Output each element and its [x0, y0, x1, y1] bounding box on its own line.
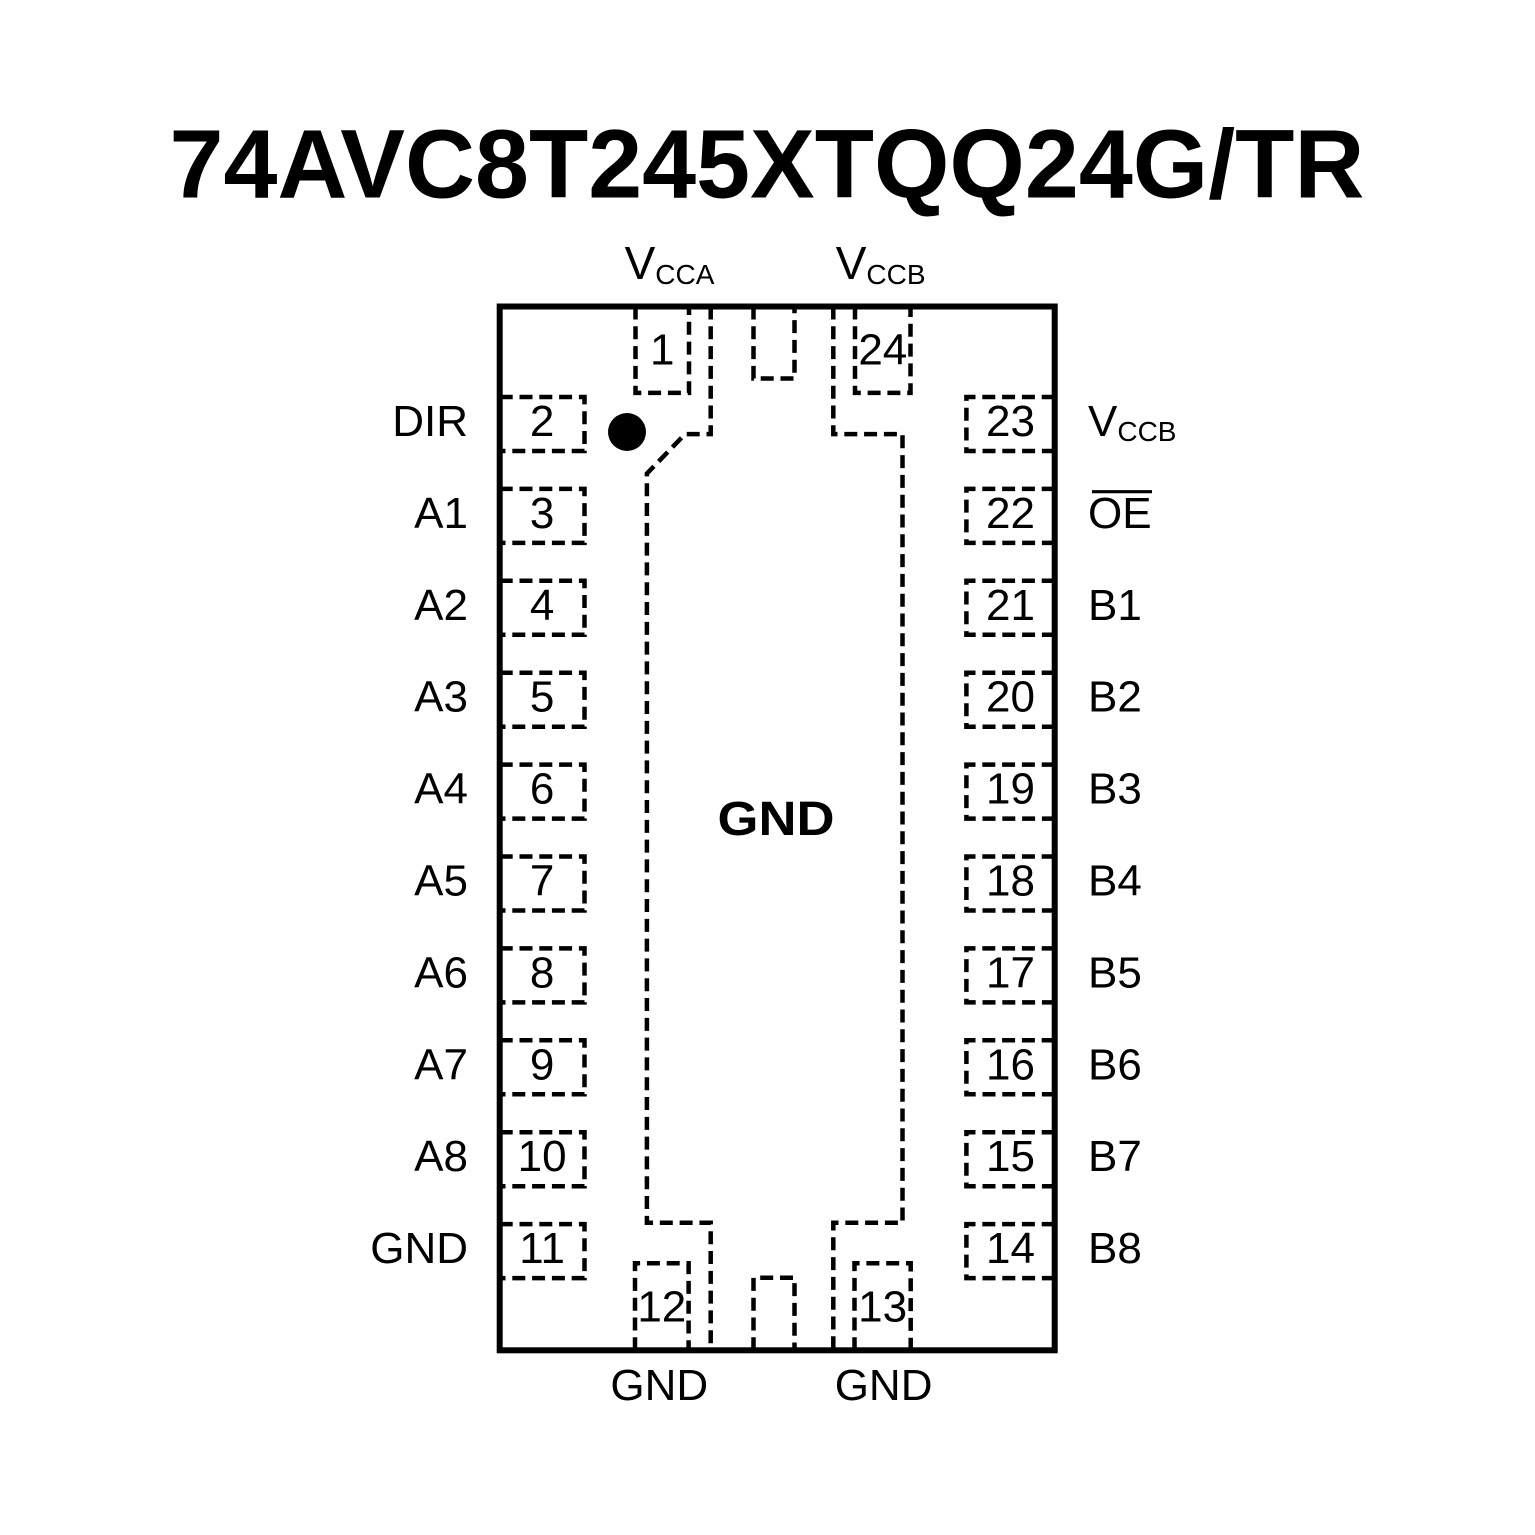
svg-text:A6: A6: [414, 948, 468, 997]
svg-text:A4: A4: [414, 765, 468, 814]
svg-text:GND: GND: [610, 1361, 708, 1410]
svg-text:B8: B8: [1088, 1224, 1142, 1273]
svg-text:GND: GND: [370, 1224, 468, 1273]
svg-text:16: 16: [986, 1040, 1035, 1089]
svg-text:21: 21: [986, 581, 1035, 630]
svg-text:A7: A7: [414, 1040, 468, 1089]
svg-text:23: 23: [986, 397, 1035, 446]
svg-text:8: 8: [530, 948, 554, 997]
svg-text:A1: A1: [414, 489, 468, 538]
svg-text:1: 1: [650, 325, 674, 374]
svg-text:12: 12: [637, 1283, 686, 1332]
svg-text:5: 5: [530, 673, 554, 722]
svg-text:19: 19: [986, 765, 1035, 814]
svg-text:11: 11: [519, 1224, 565, 1273]
svg-text:GND: GND: [835, 1361, 933, 1410]
svg-text:A2: A2: [414, 581, 468, 630]
svg-text:B7: B7: [1088, 1132, 1142, 1181]
svg-text:20: 20: [986, 673, 1035, 722]
svg-text:15: 15: [986, 1132, 1035, 1181]
svg-text:74AVC8T245XTQQ24G/TR: 74AVC8T245XTQQ24G/TR: [170, 110, 1365, 219]
svg-text:B3: B3: [1088, 765, 1142, 814]
svg-text:14: 14: [986, 1224, 1035, 1273]
svg-text:B2: B2: [1088, 673, 1142, 722]
svg-text:GND: GND: [718, 793, 835, 846]
svg-text:10: 10: [518, 1132, 567, 1181]
svg-text:18: 18: [986, 857, 1035, 906]
svg-text:A8: A8: [414, 1132, 468, 1181]
svg-text:B1: B1: [1088, 581, 1142, 630]
svg-text:22: 22: [986, 489, 1035, 538]
svg-text:7: 7: [530, 857, 554, 906]
svg-text:OE: OE: [1088, 489, 1152, 538]
svg-text:4: 4: [530, 581, 554, 630]
svg-text:6: 6: [530, 765, 554, 814]
svg-text:A3: A3: [414, 673, 468, 722]
svg-text:3: 3: [530, 489, 554, 538]
svg-text:B4: B4: [1088, 857, 1142, 906]
svg-text:17: 17: [986, 948, 1035, 997]
svg-text:9: 9: [530, 1040, 554, 1089]
svg-text:DIR: DIR: [392, 397, 468, 446]
svg-text:B6: B6: [1088, 1040, 1142, 1089]
svg-text:B5: B5: [1088, 948, 1142, 997]
svg-text:2: 2: [530, 397, 554, 446]
svg-text:24: 24: [858, 325, 907, 374]
svg-text:A5: A5: [414, 857, 468, 906]
svg-text:13: 13: [858, 1283, 907, 1332]
